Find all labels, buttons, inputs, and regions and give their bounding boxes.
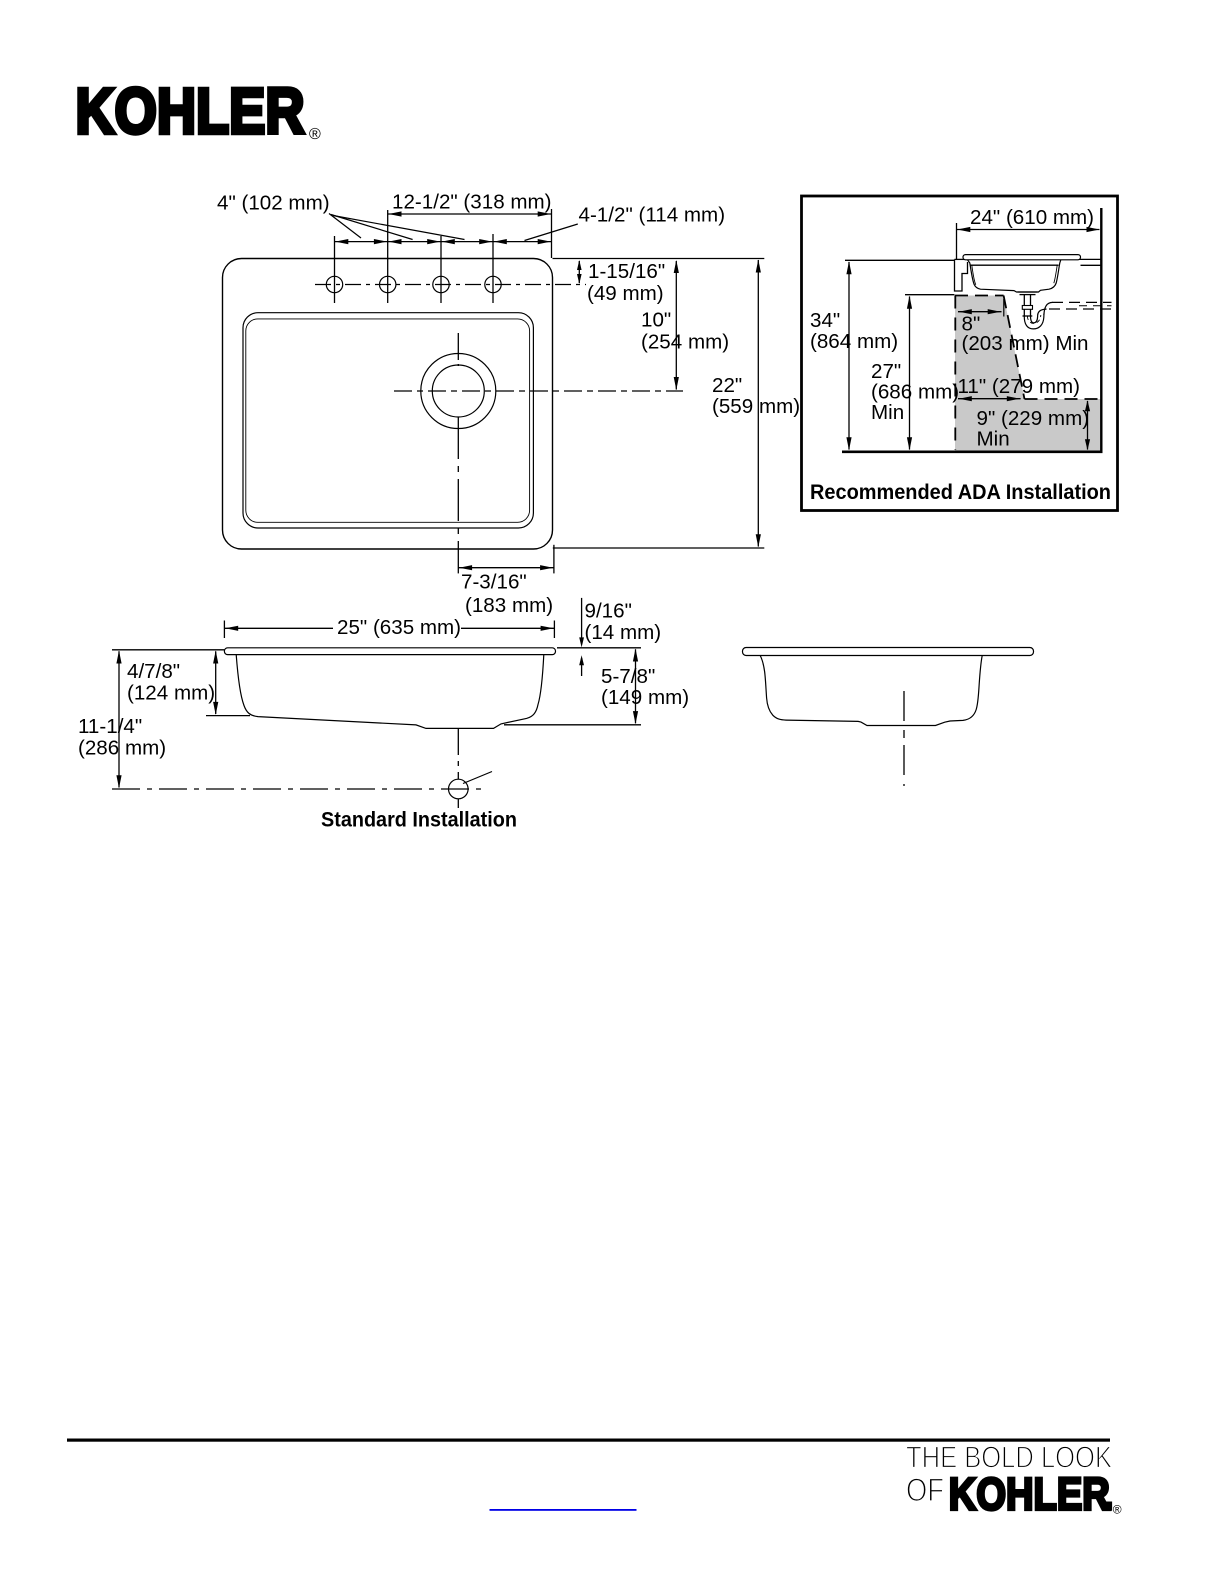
- svg-text:4-1/2" (114 mm): 4-1/2" (114 mm): [579, 204, 726, 227]
- svg-text:9/16": 9/16": [585, 599, 632, 622]
- svg-text:25" (635 mm): 25" (635 mm): [337, 616, 461, 639]
- svg-text:KOHLER: KOHLER: [76, 75, 305, 147]
- svg-text:(14 mm): (14 mm): [585, 621, 662, 644]
- svg-text:Recommended ADA Installation: Recommended ADA Installation: [810, 481, 1111, 504]
- svg-text:(49 mm): (49 mm): [587, 282, 664, 305]
- svg-text:10": 10": [641, 308, 671, 331]
- svg-text:1-15/16": 1-15/16": [588, 260, 665, 283]
- svg-text:Min: Min: [977, 428, 1010, 451]
- svg-text:(203 mm) Min: (203 mm) Min: [962, 332, 1089, 355]
- svg-text:(286 mm): (286 mm): [78, 736, 166, 759]
- svg-text:12-1/2" (318 mm): 12-1/2" (318 mm): [392, 191, 552, 214]
- svg-text:Min: Min: [871, 401, 904, 424]
- svg-text:(124 mm): (124 mm): [127, 681, 215, 704]
- svg-text:®: ®: [309, 126, 321, 143]
- svg-text:22": 22": [712, 374, 742, 397]
- svg-text:11-1/4": 11-1/4": [78, 715, 142, 738]
- svg-text:(559 mm): (559 mm): [712, 395, 800, 418]
- svg-text:11" (279 mm): 11" (279 mm): [958, 375, 1081, 398]
- svg-text:(149 mm): (149 mm): [601, 686, 689, 709]
- svg-text:Standard Installation: Standard Installation: [321, 809, 517, 832]
- svg-text:®: ®: [1113, 1503, 1122, 1517]
- svg-text:OF: OF: [906, 1472, 944, 1508]
- svg-text:4" (102 mm): 4" (102 mm): [217, 192, 330, 215]
- svg-text:(254 mm): (254 mm): [641, 330, 729, 353]
- svg-text:KOHLER: KOHLER: [949, 1469, 1110, 1520]
- svg-text:7-3/16": 7-3/16": [461, 571, 527, 594]
- svg-text:24" (610 mm): 24" (610 mm): [970, 206, 1094, 229]
- svg-text:(183 mm): (183 mm): [465, 594, 553, 617]
- svg-text:(864 mm): (864 mm): [810, 330, 898, 353]
- svg-text:4/7/8": 4/7/8": [127, 660, 180, 683]
- svg-text:34": 34": [810, 309, 840, 332]
- svg-text:5-7/8": 5-7/8": [601, 665, 655, 688]
